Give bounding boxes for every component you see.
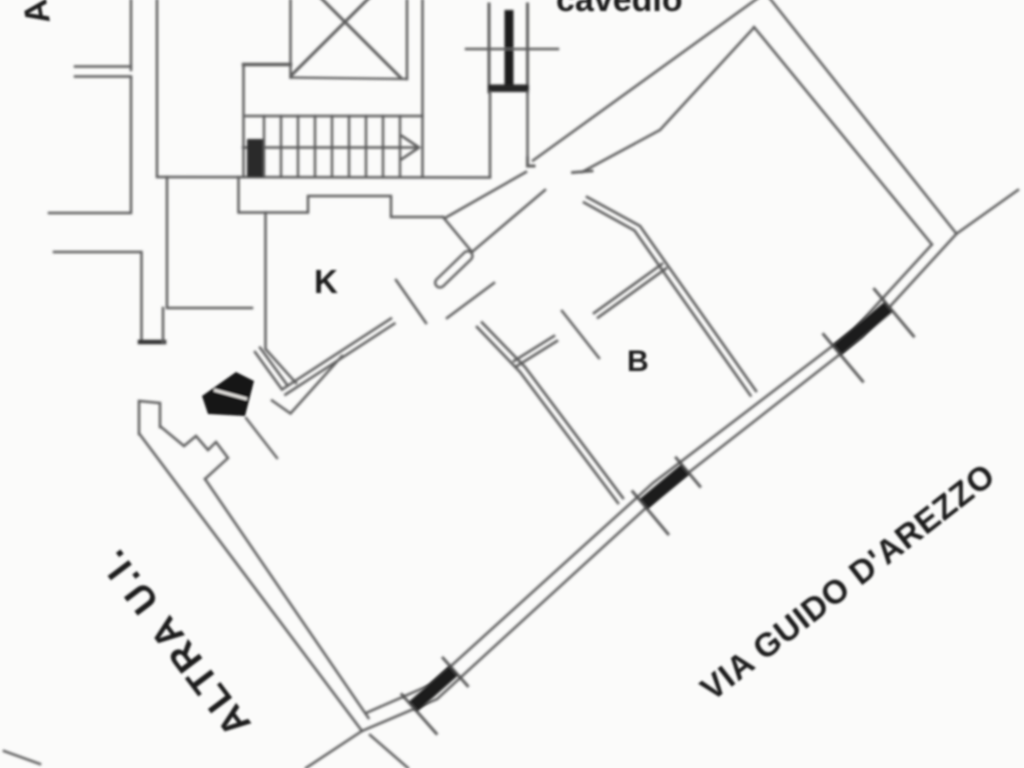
svg-text:cavedio: cavedio xyxy=(556,0,683,19)
svg-text:A: A xyxy=(16,0,58,27)
svg-text:VIA GUIDO D'AREZZO: VIA GUIDO D'AREZZO xyxy=(694,456,1002,708)
svg-text:B: B xyxy=(627,345,649,378)
svg-text:ALTRA U.I.: ALTRA U.I. xyxy=(91,540,259,744)
svg-text:K: K xyxy=(314,263,338,300)
